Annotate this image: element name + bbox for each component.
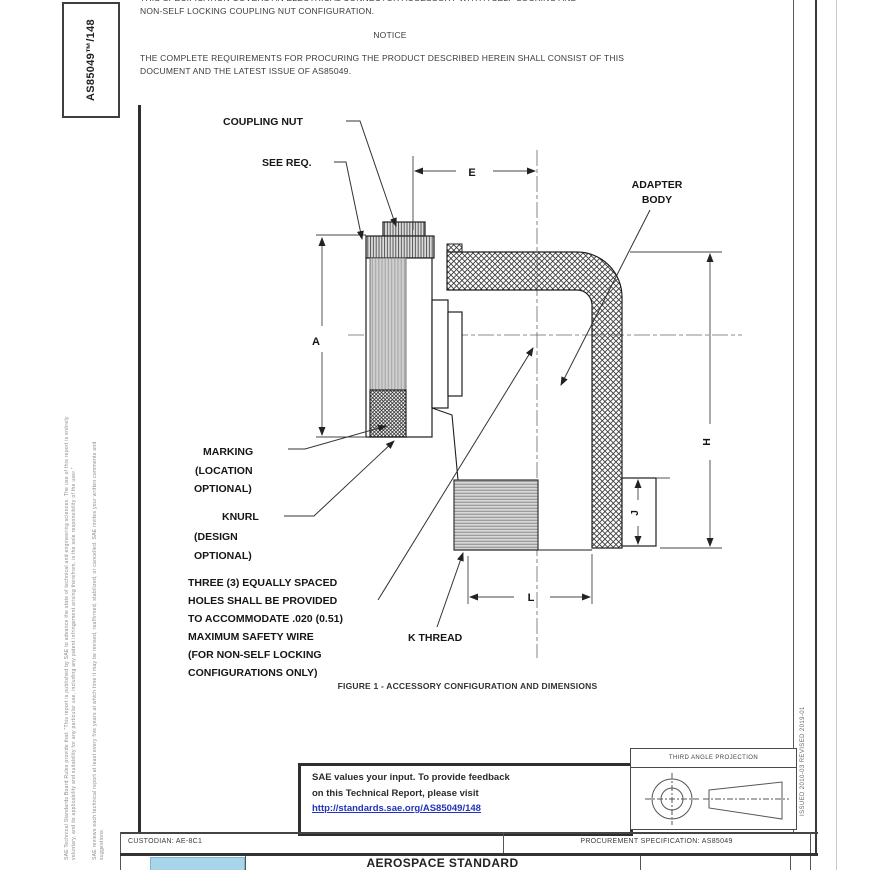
third-angle-projection-box: THIRD ANGLE PROJECTION — [630, 748, 797, 830]
coupling-nut-shape — [366, 222, 462, 437]
sae-logo — [150, 857, 245, 870]
adapter-body-label-2: BODY — [642, 194, 672, 206]
frame-left-border — [138, 105, 141, 832]
feedback-box: SAE values your input. To provide feedba… — [298, 763, 633, 836]
disclaimer-line-2: voluntary, and its applicability and sui… — [71, 122, 77, 860]
marking-label-1: MARKING — [203, 446, 253, 458]
figure-caption: FIGURE 1 - ACCESSORY CONFIGURATION AND D… — [140, 681, 795, 691]
k-thread-label: K THREAD — [408, 632, 463, 644]
footer-right-border — [810, 832, 811, 870]
knurl-label-2: (DESIGN — [194, 531, 238, 543]
procurement-cell: PROCUREMENT SPECIFICATION: AS85049 — [503, 838, 810, 845]
dim-j-label: J — [630, 510, 641, 516]
doc-number: AS85049™/148 — [85, 19, 97, 101]
feedback-link[interactable]: http://standards.sae.org/AS85049/148 — [312, 803, 481, 814]
disclaimer-line-4: suggestions. — [99, 122, 105, 860]
disclaimer-line-1: SAE Technical Standards Board Rules prov… — [64, 122, 70, 860]
footer-row2-divider-2 — [640, 856, 641, 870]
note-line-1: THREE (3) EQUALLY SPACED — [188, 577, 338, 589]
k-thread-section — [454, 480, 538, 550]
projection-title: THIRD ANGLE PROJECTION — [631, 749, 796, 768]
adapter-body-label-1: ADAPTER — [632, 179, 683, 191]
note-line-6: CONFIGURATIONS ONLY) — [188, 667, 318, 679]
figure-1-drawing: A E H J L — [0, 0, 870, 870]
note-line-3: TO ACCOMMODATE .020 (0.51) — [188, 613, 343, 625]
footer-left-border — [120, 832, 121, 870]
knurl-band — [370, 390, 406, 437]
header-configuration-line: NON-SELF LOCKING COUPLING NUT CONFIGURAT… — [140, 5, 374, 18]
aerospace-standard-title: AEROSPACE STANDARD — [245, 856, 640, 870]
projection-cone — [709, 782, 782, 819]
doc-number-box: AS85049™/148 — [62, 2, 120, 118]
dimension-h — [630, 252, 722, 548]
knurl-label-3: OPTIONAL) — [194, 550, 252, 562]
knurl-label-1: KNURL — [222, 511, 259, 523]
feedback-line-1: SAE values your input. To provide feedba… — [312, 770, 630, 786]
note-line-2: HOLES SHALL BE PROVIDED — [188, 595, 338, 607]
notice-title: NOTICE — [140, 29, 640, 42]
dimension-a — [316, 235, 366, 437]
marking-label-3: OPTIONAL) — [194, 483, 252, 495]
coupling-nut-label: COUPLING NUT — [223, 116, 304, 128]
note-line-4: MAXIMUM SAFETY WIRE — [188, 631, 314, 643]
footer-top-line — [120, 832, 818, 834]
frame-right-border — [793, 0, 794, 832]
document-page: AS85049™/148 SAE Technical Standards Boa… — [0, 0, 870, 870]
dim-h-label: H — [701, 438, 713, 446]
adapter-body-leader — [561, 210, 650, 385]
dim-l-label: L — [528, 592, 535, 604]
see-req-label: SEE REQ. — [262, 157, 312, 169]
page-right-border — [815, 0, 817, 855]
page-edge-line — [836, 0, 837, 870]
note-line-5: (FOR NON-SELF LOCKING — [188, 649, 322, 661]
custodian-cell: CUSTODIAN: AE-8C1 — [128, 838, 202, 845]
dimension-e — [413, 156, 535, 230]
feedback-line-2: on this Technical Report, please visit — [312, 786, 630, 802]
dim-a-label: A — [312, 336, 320, 348]
clipped-text-line: THIS SPECIFICATION COVERS AN ELECTRICAL … — [140, 0, 780, 4]
see-req-leader — [334, 162, 362, 239]
notice-body: THE COMPLETE REQUIREMENTS FOR PROCURING … — [140, 52, 645, 78]
footer-row2-divider-3 — [790, 856, 791, 870]
thread-flats-region — [370, 258, 406, 390]
dimension-l — [468, 554, 592, 604]
issued-revised-text: ISSUED 2010-03 REVISED 2019-01 — [800, 544, 806, 816]
coupling-nut-leader — [346, 121, 396, 226]
adapter-elbow-wall — [447, 252, 622, 548]
bottom-fitting — [622, 478, 656, 546]
disclaimer-line-3: SAE reviews each technical report at lea… — [92, 122, 98, 860]
knurl-leader — [284, 441, 394, 516]
safety-wire-note-leader — [378, 348, 533, 600]
projection-symbols — [631, 769, 794, 827]
dimension-j — [638, 478, 670, 544]
leader-lines — [284, 121, 650, 627]
dim-e-label: E — [468, 167, 475, 179]
marking-label-2: (LOCATION — [195, 465, 253, 477]
k-thread-leader — [437, 553, 463, 627]
elbow-lip — [447, 244, 462, 252]
marking-leader — [288, 426, 386, 449]
inner-ledge-line — [432, 408, 458, 480]
